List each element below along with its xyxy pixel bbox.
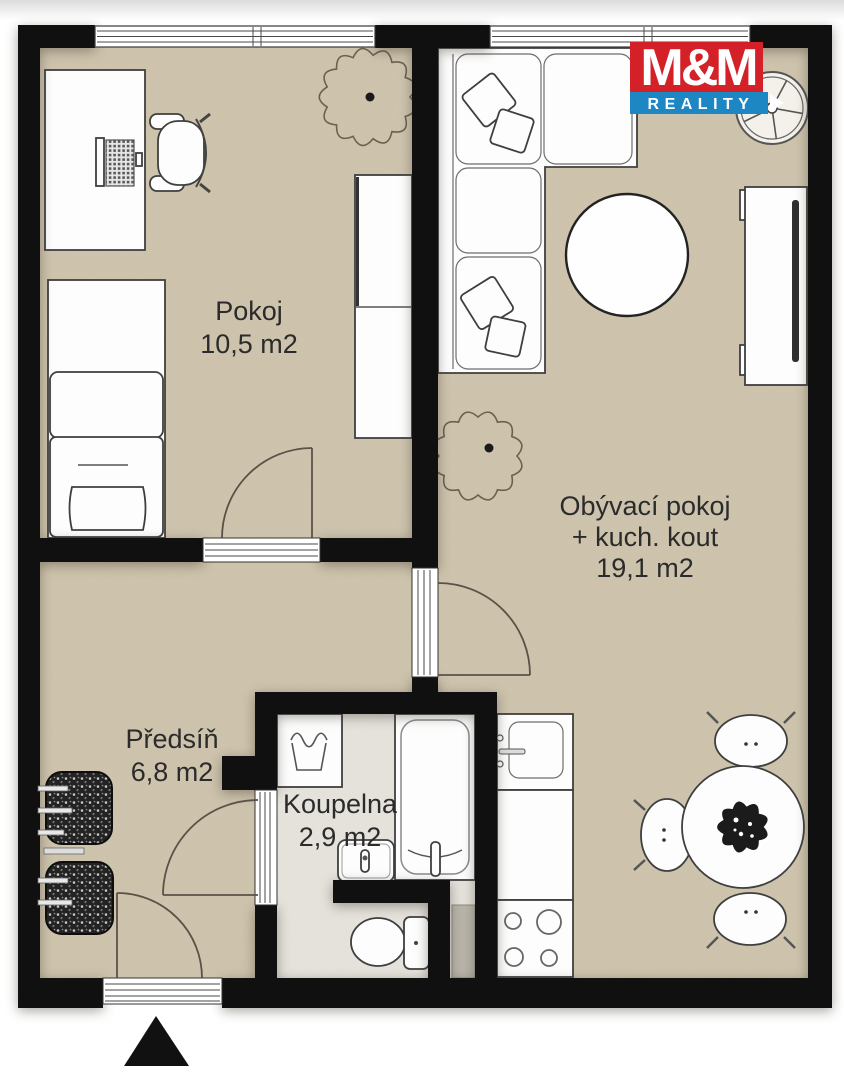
kitchen-sink: [497, 714, 573, 790]
label-living-line2: + kuch. kout: [572, 522, 719, 552]
logo-reality-text: REALITY: [648, 96, 755, 113]
tv: [792, 200, 799, 362]
label-living-line1: Obývací pokoj: [559, 491, 730, 521]
desk: [45, 70, 145, 250]
floor-plan: Pokoj 10,5 m2 Obývací pokoj + kuch. kout…: [0, 0, 844, 1080]
wardrobe: [355, 175, 412, 438]
coat-rack: [38, 862, 113, 934]
pillow: [70, 487, 146, 530]
dining-table: [682, 766, 804, 888]
coat-rack: [38, 772, 112, 844]
label-pokoj-area: 10,5 m2: [200, 329, 298, 359]
label-bath-area: 2,9 m2: [299, 822, 382, 852]
mm-reality-logo: M&M REALITY: [630, 39, 784, 114]
label-living-area: 19,1 m2: [596, 553, 694, 583]
kitchen-counter: [497, 790, 573, 900]
bed: [48, 280, 165, 538]
logo-mm-text: M&M: [640, 39, 755, 97]
tv-cabinet: [740, 187, 807, 385]
toilet: [351, 917, 429, 969]
label-pokoj-name: Pokoj: [215, 296, 283, 326]
page-edge-shade: [0, 0, 844, 20]
round-table: [566, 194, 688, 316]
bathtub: [395, 714, 475, 880]
label-hall-area: 6,8 m2: [131, 757, 214, 787]
label-bath-name: Koupelna: [283, 789, 398, 819]
label-hall-name: Předsíň: [125, 724, 218, 754]
shelf-bar: [44, 848, 84, 854]
washing-machine: [277, 714, 342, 787]
window-bedroom: [95, 26, 375, 47]
radiator: [452, 905, 475, 978]
stove: [497, 900, 573, 977]
